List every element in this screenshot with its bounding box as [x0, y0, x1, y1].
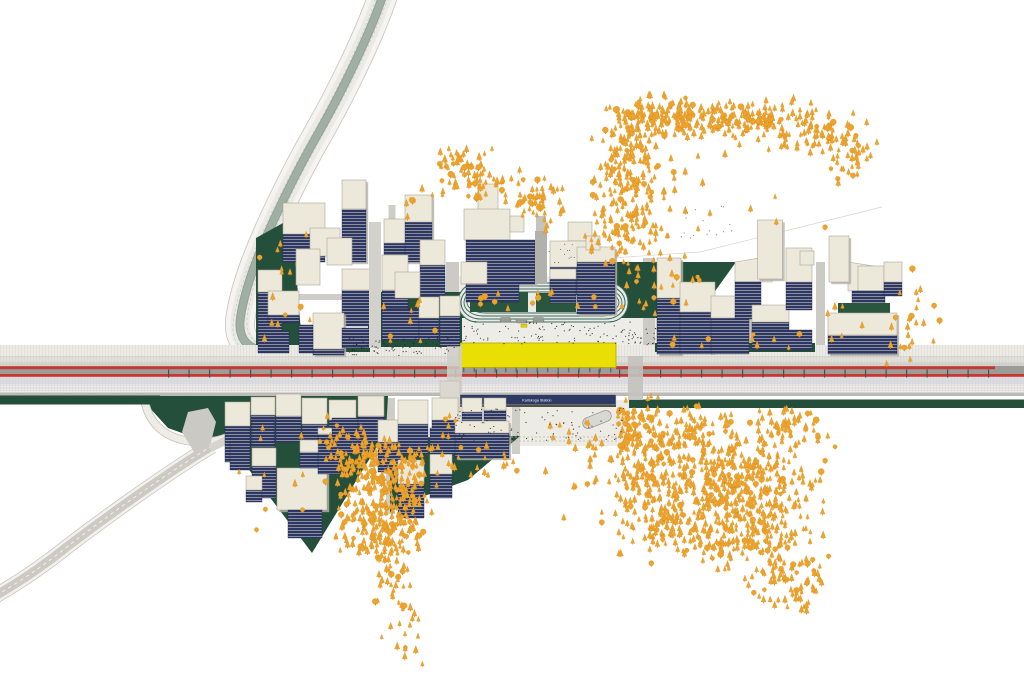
svg-text:Karlskoga Station: Karlskoga Station	[522, 398, 551, 402]
